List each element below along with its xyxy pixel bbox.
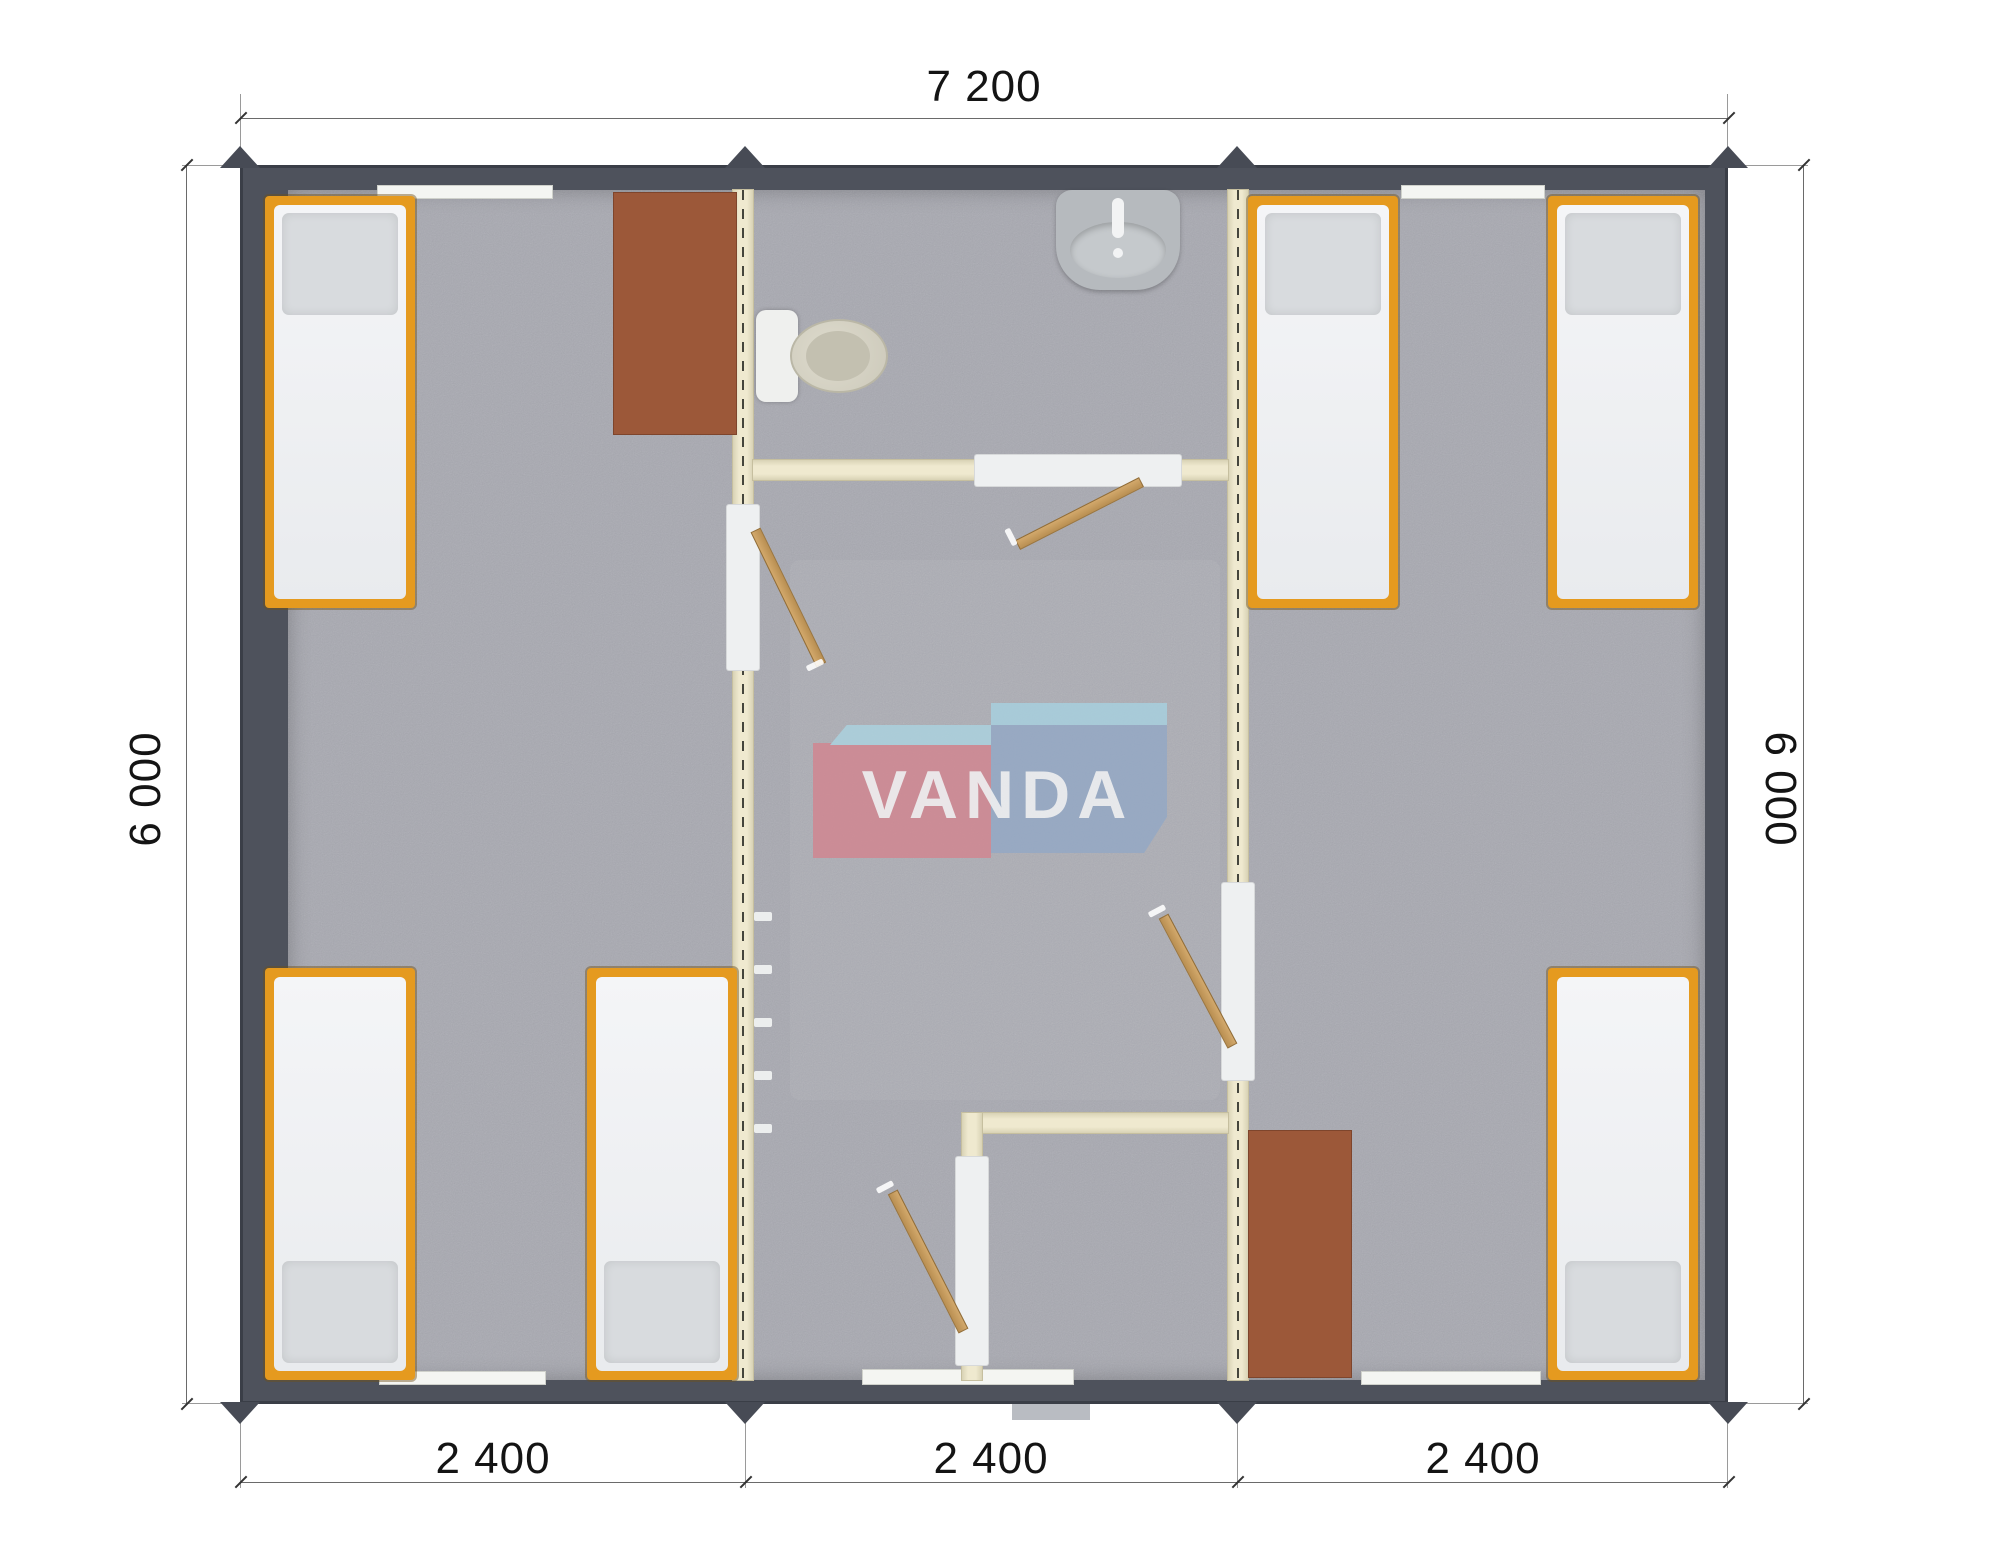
vestibule-wall-horizontal [962,1113,1228,1133]
bed-bottom-middle-left [587,968,737,1380]
bed-top-middle-right [1248,196,1398,608]
coat-hook-icon [754,965,772,974]
roof-joint-marker-icon [725,1402,765,1424]
logo-text: VANDA [810,756,1185,834]
drain-icon [1113,248,1123,258]
pillow [1265,213,1381,315]
dim-label-module-3: 2 400 [1383,1434,1583,1484]
pillow [604,1261,720,1363]
window-top-right [1402,186,1544,198]
dim-label-top-width: 7 200 [884,62,1084,112]
dim-line-top [240,118,1728,119]
coat-hook-icon [754,1018,772,1027]
coat-hook-icon [754,1071,772,1080]
roof-joint-marker-icon [1708,1402,1748,1424]
roof-joint-marker-icon [1217,1402,1257,1424]
floor-plan: 7 200 2 400 2 400 2 400 6 000 6 000 [0,0,2000,1566]
vanda-watermark: VANDA [810,700,1185,862]
roof-joint-marker-icon [220,146,260,168]
dim-tick [1798,1398,1811,1411]
bed-bottom-left [265,968,415,1380]
coat-hook-icon [754,1124,772,1133]
pillow [282,1261,398,1363]
bed-top-left [265,196,415,608]
coat-hook-icon [754,912,772,921]
roof-joint-marker-icon [220,1402,260,1424]
roof-joint-marker-icon [1217,146,1257,168]
window-bottom-right [1362,1372,1540,1384]
table-bottom-right [1248,1130,1352,1378]
pillow [282,213,398,315]
toilet-seat [806,331,870,381]
faucet-icon [1112,198,1124,238]
module-seam-line [1237,190,1239,1380]
dim-tick [181,1398,194,1411]
dim-label-left-height: 6 000 [121,689,171,889]
dim-line-left [186,165,187,1404]
entrance-threshold [1012,1404,1090,1420]
door-opening-right-room [1222,883,1254,1080]
dim-label-module-1: 2 400 [393,1434,593,1484]
pillow [1565,1261,1681,1363]
table-top-left [613,192,737,435]
sink-icon [1056,190,1180,290]
logo-red-box-top [830,725,1008,745]
door-opening-vestibule [956,1157,988,1365]
module-seam-line [742,190,744,1380]
roof-joint-marker-icon [725,146,765,168]
bed-bottom-far-right [1548,968,1698,1380]
module-joint-wall-right [1228,190,1248,1380]
roof-joint-marker-icon [1708,146,1748,168]
pillow [1565,213,1681,315]
bed-top-far-right [1548,196,1698,608]
bathroom-sliding-door [975,455,1181,486]
dim-label-module-2: 2 400 [891,1434,1091,1484]
dim-label-right-height: 6 000 [1755,689,1805,889]
logo-blue-box-top [991,703,1167,725]
